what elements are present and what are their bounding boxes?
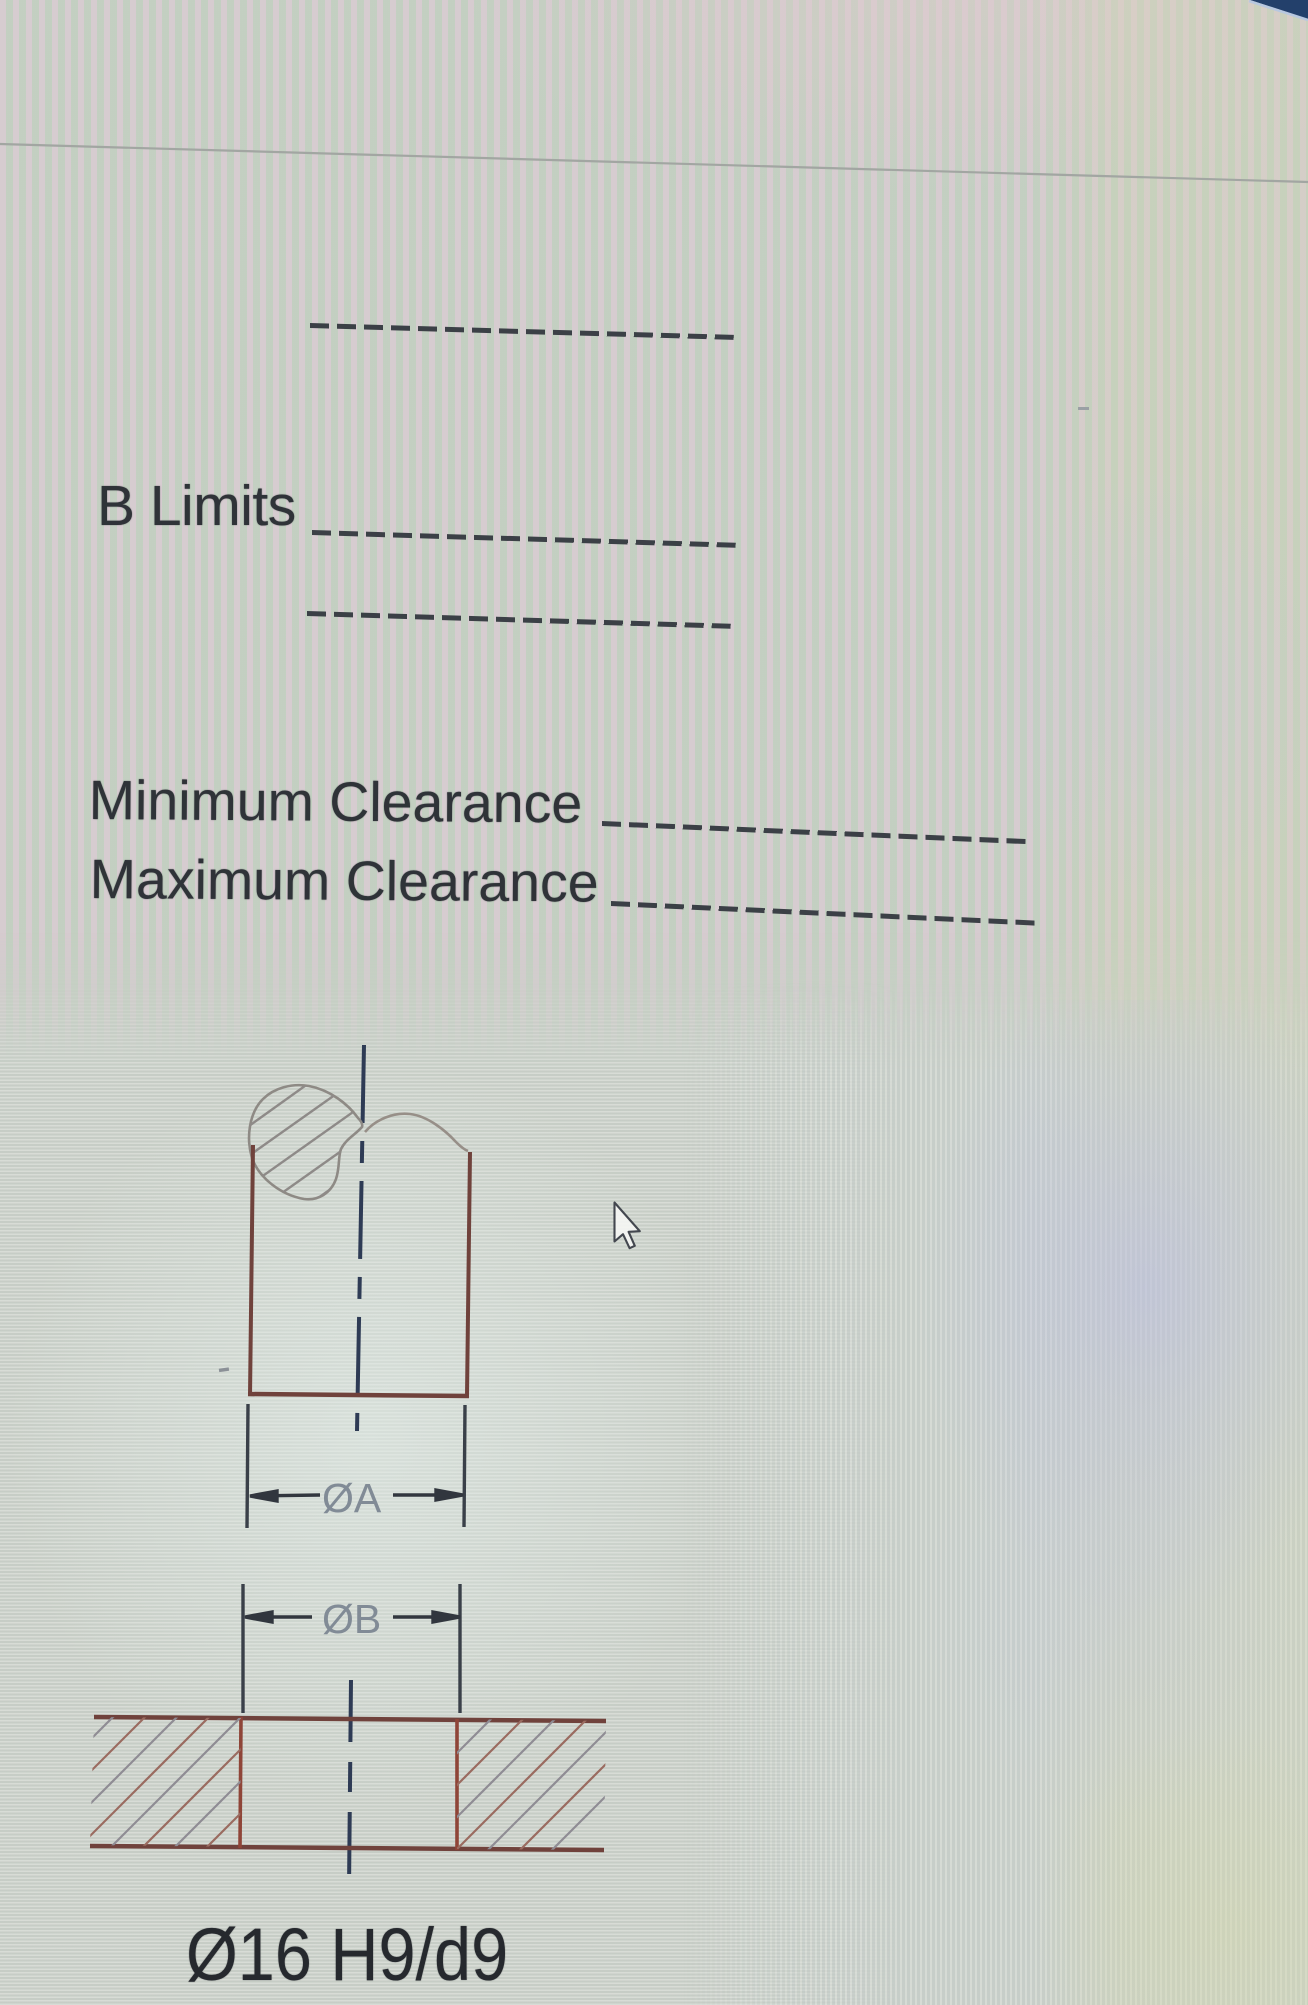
- svg-text:ØA: ØA: [322, 1475, 382, 1521]
- svg-text:ØB: ØB: [322, 1596, 381, 1642]
